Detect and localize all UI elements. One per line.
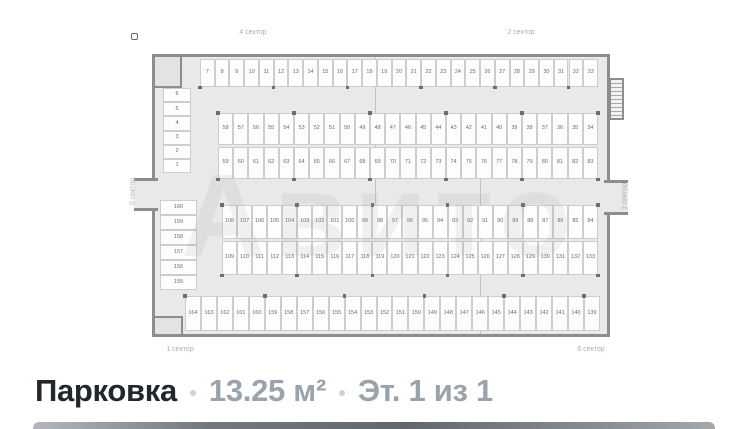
parking-space: 4 <box>163 116 191 130</box>
dot-separator <box>339 390 345 396</box>
parking-space: 99 <box>357 205 372 239</box>
parking-space: 47 <box>385 113 400 145</box>
parking-space: 40 <box>492 113 507 145</box>
parking-space: 111 <box>252 241 267 275</box>
parking-space: 106 <box>252 205 267 239</box>
parking-space: 144 <box>504 296 520 331</box>
parking-space: 122 <box>418 241 433 275</box>
parking-space: 97 <box>387 205 402 239</box>
parking-space: 53 <box>294 113 309 145</box>
listing-photo-viewer: 4 сектор 2 сектор 1 сектор 6 сектор 5 се… <box>0 0 731 429</box>
parking-space: 115 <box>312 241 327 275</box>
structural-column-marker <box>502 294 506 298</box>
structural-column-marker <box>346 86 350 90</box>
parking-space: 44 <box>431 113 446 145</box>
parking-space: 66 <box>324 147 339 179</box>
parking-space: 150 <box>408 296 424 331</box>
structural-column-marker <box>295 274 299 278</box>
structural-column-marker <box>596 111 600 115</box>
structural-column-marker <box>419 86 423 90</box>
parking-space: 124 <box>448 241 463 275</box>
structural-column-marker <box>216 111 220 115</box>
parking-space: 67 <box>340 147 355 179</box>
parking-space: 51 <box>324 113 339 145</box>
parking-space: 162 <box>217 296 233 331</box>
parking-space: 153 <box>361 296 377 331</box>
parking-space: 32 <box>569 59 584 87</box>
parking-space: 158 <box>281 296 297 331</box>
parking-space: 158 <box>160 230 197 245</box>
parking-space: 139 <box>584 296 600 331</box>
parking-space: 161 <box>233 296 249 331</box>
parking-space: 116 <box>327 241 342 275</box>
parking-space: 125 <box>463 241 478 275</box>
parking-space: 100 <box>342 205 357 239</box>
parking-space: 117 <box>342 241 357 275</box>
parking-space: 33 <box>583 59 598 87</box>
parking-space: 119 <box>372 241 387 275</box>
structural-column-marker <box>596 274 600 278</box>
structural-column-marker <box>521 203 525 207</box>
parking-space: 145 <box>488 296 504 331</box>
parking-space: 78 <box>507 147 522 179</box>
parking-space: 43 <box>446 113 461 145</box>
parking-space: 88 <box>523 205 538 239</box>
parking-space: 57 <box>233 113 248 145</box>
parking-space: 21 <box>406 59 421 87</box>
entrance-ramp-left <box>134 178 158 211</box>
area-value: 13.25 м² <box>209 373 326 409</box>
structural-column-marker <box>216 178 220 182</box>
parking-space: 8 <box>215 59 230 87</box>
structural-column-marker <box>368 111 372 115</box>
parking-space: 92 <box>463 205 478 239</box>
parking-space: 82 <box>568 147 583 179</box>
listing-title: Парковка <box>35 373 177 409</box>
parking-space: 65 <box>309 147 324 179</box>
parking-space: 37 <box>537 113 552 145</box>
parking-space: 10 <box>244 59 259 87</box>
structural-column-marker <box>596 203 600 207</box>
parking-space: 110 <box>237 241 252 275</box>
stairwell-block-bottom-left <box>155 316 183 334</box>
parking-space: 27 <box>495 59 510 87</box>
parking-space: 89 <box>508 205 523 239</box>
parking-space: 96 <box>402 205 417 239</box>
parking-space: 19 <box>377 59 392 87</box>
parking-space: 118 <box>357 241 372 275</box>
parking-space: 81 <box>552 147 567 179</box>
parking-space: 155 <box>329 296 345 331</box>
parking-space: 107 <box>237 205 252 239</box>
parking-space: 30 <box>539 59 554 87</box>
parking-space: 126 <box>478 241 493 275</box>
parking-space: 84 <box>583 205 598 239</box>
parking-space: 20 <box>392 59 407 87</box>
structural-column-marker <box>292 111 296 115</box>
parking-space: 93 <box>448 205 463 239</box>
parking-space: 39 <box>507 113 522 145</box>
parking-space: 41 <box>476 113 491 145</box>
parking-space: 73 <box>431 147 446 179</box>
structural-column-marker <box>368 178 372 182</box>
parking-space: 120 <box>387 241 402 275</box>
parking-space: 91 <box>478 205 493 239</box>
parking-space: 109 <box>222 241 237 275</box>
stairs-icon <box>609 78 624 120</box>
parking-space: 102 <box>312 205 327 239</box>
parking-space: 157 <box>160 245 197 260</box>
parking-space: 12 <box>274 59 289 87</box>
parking-space: 142 <box>536 296 552 331</box>
structural-column-marker <box>446 203 450 207</box>
structural-column-marker <box>446 274 450 278</box>
parking-space: 103 <box>297 205 312 239</box>
parking-space: 154 <box>345 296 361 331</box>
parking-space: 163 <box>201 296 217 331</box>
parking-space: 98 <box>372 205 387 239</box>
parking-space: 49 <box>355 113 370 145</box>
parking-space: 133 <box>583 241 598 275</box>
parking-space: 155 <box>160 275 197 290</box>
structural-column-marker <box>582 294 586 298</box>
parking-space: 70 <box>385 147 400 179</box>
floor-value: Эт. 1 из 1 <box>358 373 493 409</box>
parking-space: 148 <box>440 296 456 331</box>
parking-space: 7 <box>200 59 215 87</box>
sector-label-left: 5 сектор <box>130 167 137 217</box>
parking-space: 160 <box>160 200 197 215</box>
parking-space: 46 <box>400 113 415 145</box>
parking-space: 74 <box>446 147 461 179</box>
parking-space: 25 <box>465 59 480 87</box>
sector-label-bottom-right: 6 сектор <box>566 346 616 353</box>
parking-space: 16 <box>333 59 348 87</box>
parking-space: 55 <box>264 113 279 145</box>
parking-space: 50 <box>340 113 355 145</box>
parking-space: 5 <box>163 102 191 116</box>
parking-space: 147 <box>456 296 472 331</box>
parking-space: 35 <box>568 113 583 145</box>
structural-column-marker <box>183 294 187 298</box>
listing-caption: Парковка 13.25 м² Эт. 1 из 1 <box>35 368 493 414</box>
structural-column-marker <box>220 203 224 207</box>
parking-space: 164 <box>185 296 201 331</box>
parking-space: 132 <box>568 241 583 275</box>
parking-space: 61 <box>248 147 263 179</box>
parking-space: 48 <box>370 113 385 145</box>
structural-column-marker <box>444 178 448 182</box>
parking-space: 108 <box>222 205 237 239</box>
parking-space: 113 <box>282 241 297 275</box>
structural-column-marker <box>295 203 299 207</box>
stairwell-block-top-left <box>155 57 182 88</box>
parking-space: 38 <box>522 113 537 145</box>
parking-space: 114 <box>297 241 312 275</box>
sector-label-bottom-left: 1 сектор <box>155 346 205 353</box>
parking-space: 130 <box>538 241 553 275</box>
parking-space: 86 <box>553 205 568 239</box>
parking-space: 152 <box>377 296 393 331</box>
parking-space: 24 <box>451 59 466 87</box>
parking-space: 60 <box>233 147 248 179</box>
parking-space: 18 <box>362 59 377 87</box>
parking-space: 31 <box>554 59 569 87</box>
parking-space: 95 <box>418 205 433 239</box>
parking-space: 160 <box>249 296 265 331</box>
parking-space: 1 <box>163 159 191 173</box>
parking-space: 72 <box>416 147 431 179</box>
parking-space: 11 <box>259 59 274 87</box>
parking-space: 69 <box>370 147 385 179</box>
parking-space: 159 <box>160 215 197 230</box>
parking-space: 42 <box>461 113 476 145</box>
parking-space: 3 <box>163 131 191 145</box>
parking-space: 146 <box>472 296 488 331</box>
structural-column-marker <box>423 294 427 298</box>
parking-space: 45 <box>416 113 431 145</box>
parking-space: 63 <box>279 147 294 179</box>
parking-space: 140 <box>568 296 584 331</box>
structural-column-marker <box>567 86 571 90</box>
structural-column-marker <box>371 203 375 207</box>
dot-separator <box>190 390 196 396</box>
parking-space: 87 <box>538 205 553 239</box>
parking-space: 56 <box>248 113 263 145</box>
parking-space: 62 <box>264 147 279 179</box>
parking-space: 64 <box>294 147 309 179</box>
parking-space: 34 <box>583 113 598 145</box>
parking-space: 58 <box>218 113 233 145</box>
parking-space: 129 <box>523 241 538 275</box>
parking-space: 17 <box>347 59 362 87</box>
sector-label-top-left: 4 сектор <box>228 29 278 36</box>
parking-space: 9 <box>229 59 244 87</box>
parking-space: 71 <box>400 147 415 179</box>
structural-column-marker <box>596 178 600 182</box>
orientation-marker-icon <box>131 33 138 40</box>
parking-space: 156 <box>313 296 329 331</box>
parking-space: 157 <box>297 296 313 331</box>
parking-space: 6 <box>163 88 191 102</box>
structural-column-marker <box>220 274 224 278</box>
structural-column-marker <box>343 294 347 298</box>
parking-space: 26 <box>480 59 495 87</box>
parking-space: 28 <box>510 59 525 87</box>
parking-space: 15 <box>318 59 333 87</box>
parking-space: 112 <box>267 241 282 275</box>
parking-space: 77 <box>492 147 507 179</box>
structural-column-marker <box>263 294 267 298</box>
structural-column-marker <box>292 178 296 182</box>
parking-space: 54 <box>279 113 294 145</box>
parking-space: 29 <box>524 59 539 87</box>
parking-space: 68 <box>355 147 370 179</box>
parking-space: 76 <box>476 147 491 179</box>
structural-column-marker <box>521 274 525 278</box>
parking-space: 156 <box>160 260 197 275</box>
structural-column-marker <box>371 274 375 278</box>
parking-space: 94 <box>433 205 448 239</box>
structural-column-marker <box>493 86 497 90</box>
parking-space: 13 <box>288 59 303 87</box>
floor-plan[interactable]: 6543217891011121314151617181920212223242… <box>152 54 610 337</box>
structural-column-marker <box>198 86 202 90</box>
parking-space: 52 <box>309 113 324 145</box>
parking-space: 90 <box>493 205 508 239</box>
parking-space: 127 <box>493 241 508 275</box>
parking-space: 80 <box>537 147 552 179</box>
parking-space: 59 <box>218 147 233 179</box>
parking-space: 104 <box>282 205 297 239</box>
parking-space: 14 <box>303 59 318 87</box>
parking-space: 105 <box>267 205 282 239</box>
structural-column-marker <box>272 86 276 90</box>
parking-space: 85 <box>568 205 583 239</box>
parking-space: 75 <box>461 147 476 179</box>
sector-label-right: 3 сектор <box>622 172 629 222</box>
parking-space: 159 <box>265 296 281 331</box>
parking-space: 141 <box>552 296 568 331</box>
structural-column-marker <box>520 178 524 182</box>
parking-space: 123 <box>433 241 448 275</box>
parking-space: 22 <box>421 59 436 87</box>
parking-space: 131 <box>553 241 568 275</box>
parking-space: 79 <box>522 147 537 179</box>
parking-space: 151 <box>392 296 408 331</box>
parking-space: 143 <box>520 296 536 331</box>
parking-space: 83 <box>583 147 598 179</box>
next-photo-card-edge[interactable] <box>33 422 715 429</box>
parking-space: 128 <box>508 241 523 275</box>
parking-space: 36 <box>552 113 567 145</box>
parking-space: 23 <box>436 59 451 87</box>
parking-space: 149 <box>424 296 440 331</box>
parking-space: 121 <box>402 241 417 275</box>
structural-column-marker <box>444 111 448 115</box>
structural-column-marker <box>520 111 524 115</box>
parking-space: 101 <box>327 205 342 239</box>
sector-label-top-right: 2 сектор <box>496 29 546 36</box>
parking-space: 2 <box>163 145 191 159</box>
